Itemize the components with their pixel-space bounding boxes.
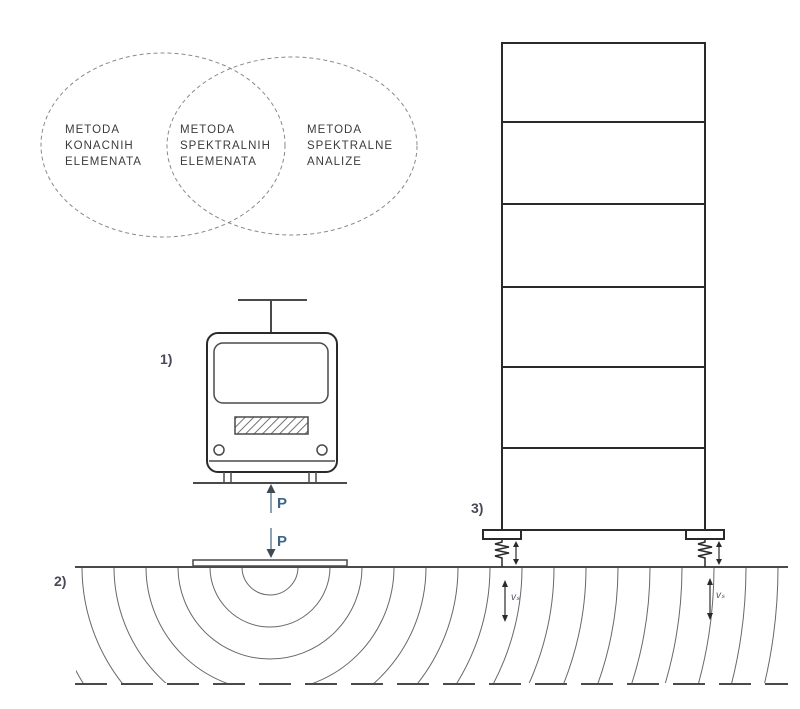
venn-overlap-line2: SPEKTRALNIH xyxy=(180,140,271,152)
tram-window xyxy=(214,343,328,403)
right-velocity-label: vₛ xyxy=(716,590,725,601)
left-velocity-label: vₛ xyxy=(511,592,520,603)
tram-marker-label: 1) xyxy=(160,351,172,367)
right-footing-pad xyxy=(686,530,724,539)
right-velocity-arrow: vₛ xyxy=(707,578,725,620)
venn-overlap-label: METODA SPEKTRALNIH ELEMENATA xyxy=(180,124,271,168)
diagram-svg: METODA KONACNIH ELEMENATA METODA SPEKTRA… xyxy=(0,0,800,709)
right-spring-arrow xyxy=(716,541,722,565)
building-frame: 3) xyxy=(471,43,724,567)
venn-right-line2: SPEKTRALNE xyxy=(307,140,393,152)
venn-left-line3: ELEMENATA xyxy=(65,156,142,168)
figure-canvas: METODA KONACNIH ELEMENATA METODA SPEKTRA… xyxy=(0,0,800,709)
venn-right-line3: ANALIZE xyxy=(307,156,362,168)
left-spring-arrow xyxy=(513,541,519,565)
venn-left-label: METODA KONACNIH ELEMENATA xyxy=(65,124,142,168)
tram: 1) xyxy=(160,300,347,483)
velocity-arrows: vₛ vₛ xyxy=(502,578,725,622)
venn-left-line2: KONACNIH xyxy=(65,140,134,152)
force-up-label: P xyxy=(277,495,287,512)
tram-left-light xyxy=(214,445,224,455)
ground-marker-label: 2) xyxy=(54,573,66,589)
tram-supports xyxy=(224,472,316,483)
force-arrows: P P xyxy=(267,484,288,558)
building-marker-label: 3) xyxy=(471,500,483,516)
tram-vent-hatched xyxy=(235,417,308,434)
venn-overlap-line3: ELEMENATA xyxy=(180,156,257,168)
foundation-plate xyxy=(193,560,347,566)
left-spring xyxy=(495,539,509,567)
venn-left-line1: METODA xyxy=(65,124,120,136)
wave-arc xyxy=(0,251,586,709)
force-up-arrowhead xyxy=(267,484,276,493)
venn-overlap-line1: METODA xyxy=(180,124,235,136)
right-spring xyxy=(698,539,712,567)
left-footing-pad xyxy=(483,530,521,539)
force-down-label: P xyxy=(277,533,287,550)
force-down-arrowhead xyxy=(267,549,276,558)
venn-diagram: METODA KONACNIH ELEMENATA METODA SPEKTRA… xyxy=(41,53,417,237)
tram-right-light xyxy=(317,445,327,455)
venn-right-label: METODA SPEKTRALNE ANALIZE xyxy=(307,124,393,168)
venn-right-line1: METODA xyxy=(307,124,362,136)
